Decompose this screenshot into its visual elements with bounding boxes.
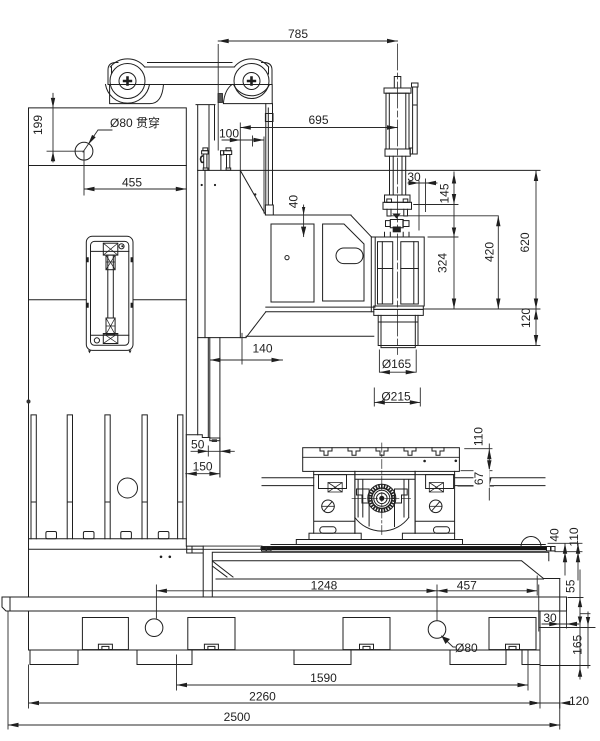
- svg-text:120: 120: [519, 308, 533, 328]
- svg-text:695: 695: [308, 113, 328, 127]
- svg-text:1248: 1248: [311, 578, 338, 592]
- svg-text:2500: 2500: [224, 710, 251, 724]
- svg-text:120: 120: [569, 694, 589, 708]
- svg-text:55: 55: [564, 579, 578, 593]
- svg-text:Ø165: Ø165: [382, 357, 412, 371]
- svg-text:Ø80: Ø80: [455, 641, 478, 655]
- svg-text:620: 620: [518, 232, 532, 252]
- svg-text:67: 67: [472, 472, 486, 486]
- svg-text:40: 40: [548, 528, 562, 542]
- svg-text:2260: 2260: [249, 690, 276, 704]
- svg-text:785: 785: [288, 27, 308, 41]
- svg-text:150: 150: [193, 460, 213, 474]
- svg-text:50: 50: [191, 438, 205, 452]
- svg-text:324: 324: [436, 253, 450, 273]
- svg-text:30: 30: [407, 170, 421, 184]
- svg-text:Ø80 贯穿: Ø80 贯穿: [110, 115, 160, 130]
- svg-text:30: 30: [543, 611, 557, 625]
- svg-text:145: 145: [438, 183, 452, 203]
- svg-text:457: 457: [457, 578, 477, 592]
- svg-text:40: 40: [287, 195, 301, 209]
- svg-text:110: 110: [567, 527, 581, 546]
- svg-text:1590: 1590: [310, 671, 337, 685]
- svg-text:420: 420: [483, 242, 497, 262]
- svg-text:Ø215: Ø215: [381, 390, 411, 404]
- svg-text:199: 199: [31, 115, 45, 135]
- svg-text:110: 110: [472, 427, 486, 446]
- svg-text:455: 455: [122, 176, 142, 190]
- svg-text:165: 165: [571, 634, 585, 654]
- svg-text:100: 100: [219, 127, 239, 141]
- svg-text:140: 140: [252, 342, 272, 356]
